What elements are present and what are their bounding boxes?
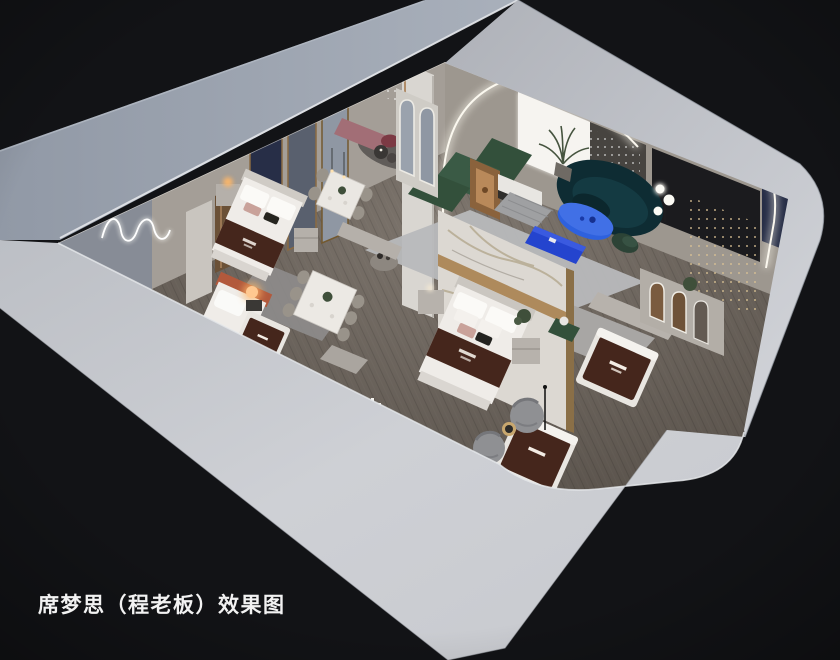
vignette [0, 0, 840, 660]
scene-svg [0, 0, 840, 660]
caption: 席梦思（程老板）效果图 [38, 589, 286, 619]
render-stage: 席梦思（程老板）效果图 [0, 0, 840, 660]
